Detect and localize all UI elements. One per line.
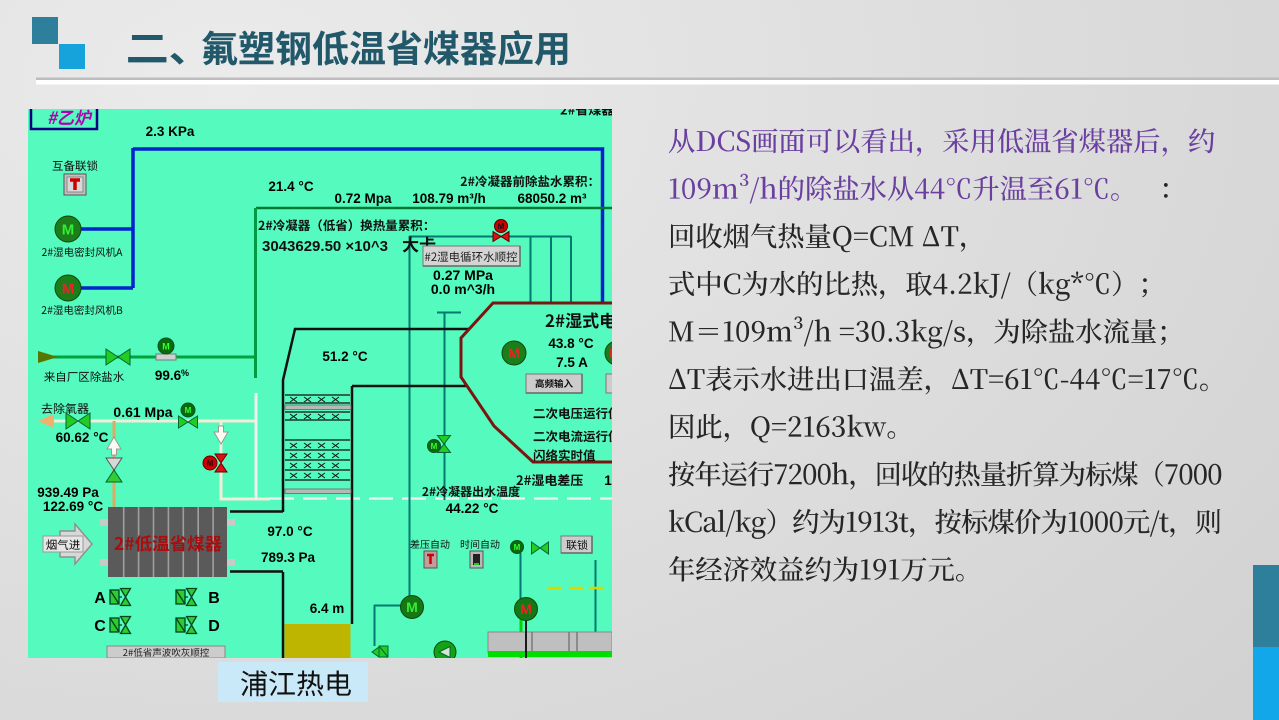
svg-text:M: M bbox=[508, 345, 520, 361]
svg-text:A: A bbox=[94, 590, 106, 607]
svg-text:99.6: 99.6 bbox=[155, 368, 182, 383]
svg-text:0.72 Mpa: 0.72 Mpa bbox=[334, 191, 392, 206]
svg-text:51.2 °C: 51.2 °C bbox=[322, 349, 367, 364]
svg-text:43.8 °C: 43.8 °C bbox=[548, 336, 593, 351]
svg-text:1: 1 bbox=[604, 473, 612, 488]
svg-text:M: M bbox=[514, 543, 521, 552]
svg-text:97.0 °C: 97.0 °C bbox=[267, 524, 312, 539]
svg-text:0.61 Mpa: 0.61 Mpa bbox=[113, 404, 172, 420]
svg-text:M: M bbox=[207, 459, 214, 468]
svg-text:2.3 KPa: 2.3 KPa bbox=[146, 124, 195, 139]
svg-text:D: D bbox=[208, 618, 220, 635]
svg-text:B: B bbox=[208, 590, 220, 607]
svg-text:M: M bbox=[609, 345, 621, 361]
svg-text:M: M bbox=[406, 599, 418, 615]
svg-text:M: M bbox=[431, 442, 438, 451]
svg-text:939.49 Pa: 939.49 Pa bbox=[37, 485, 99, 500]
svg-text:3043629.50 ×10^3: 3043629.50 ×10^3 bbox=[262, 238, 388, 255]
svg-text:7.5 A: 7.5 A bbox=[556, 355, 588, 370]
svg-text:60.62 °C: 60.62 °C bbox=[56, 430, 109, 445]
svg-text:44.22 °C: 44.22 °C bbox=[446, 501, 499, 516]
svg-text:M: M bbox=[498, 222, 505, 231]
svg-text:%: % bbox=[181, 368, 189, 378]
svg-text:0.0 m^3/h: 0.0 m^3/h bbox=[431, 281, 495, 297]
svg-text:122.69 °C: 122.69 °C bbox=[43, 499, 103, 514]
svg-text:M: M bbox=[520, 601, 532, 617]
svg-text:M: M bbox=[185, 406, 192, 415]
svg-text:M: M bbox=[62, 281, 75, 298]
svg-text:21.4 °C: 21.4 °C bbox=[268, 179, 313, 194]
svg-text:M: M bbox=[62, 222, 75, 239]
svg-text:108.79 m³/h: 108.79 m³/h bbox=[412, 191, 486, 206]
svg-text:6.4 m: 6.4 m bbox=[310, 601, 345, 616]
svg-text:C: C bbox=[94, 618, 106, 635]
svg-text:789.3 Pa: 789.3 Pa bbox=[261, 550, 316, 565]
svg-text:68050.2 m³: 68050.2 m³ bbox=[517, 191, 587, 206]
svg-text:M: M bbox=[162, 342, 170, 352]
